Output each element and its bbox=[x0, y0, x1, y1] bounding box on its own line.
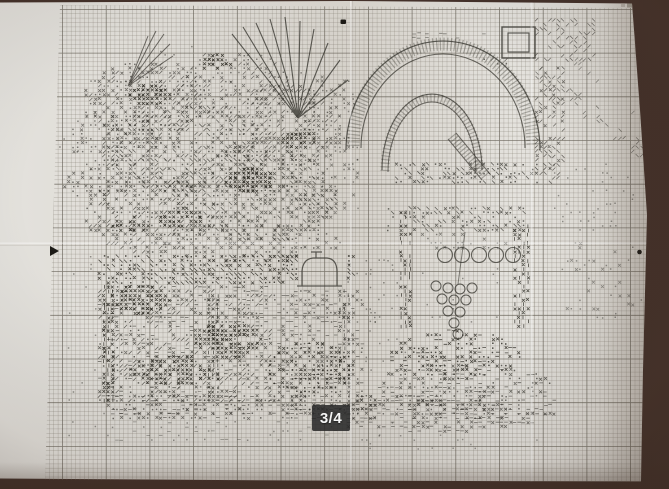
page-indicator-badge: 3/4 bbox=[312, 405, 350, 431]
page-indicator-label: 3/4 bbox=[320, 410, 342, 427]
photo-viewer: 3/4 bbox=[0, 0, 669, 489]
